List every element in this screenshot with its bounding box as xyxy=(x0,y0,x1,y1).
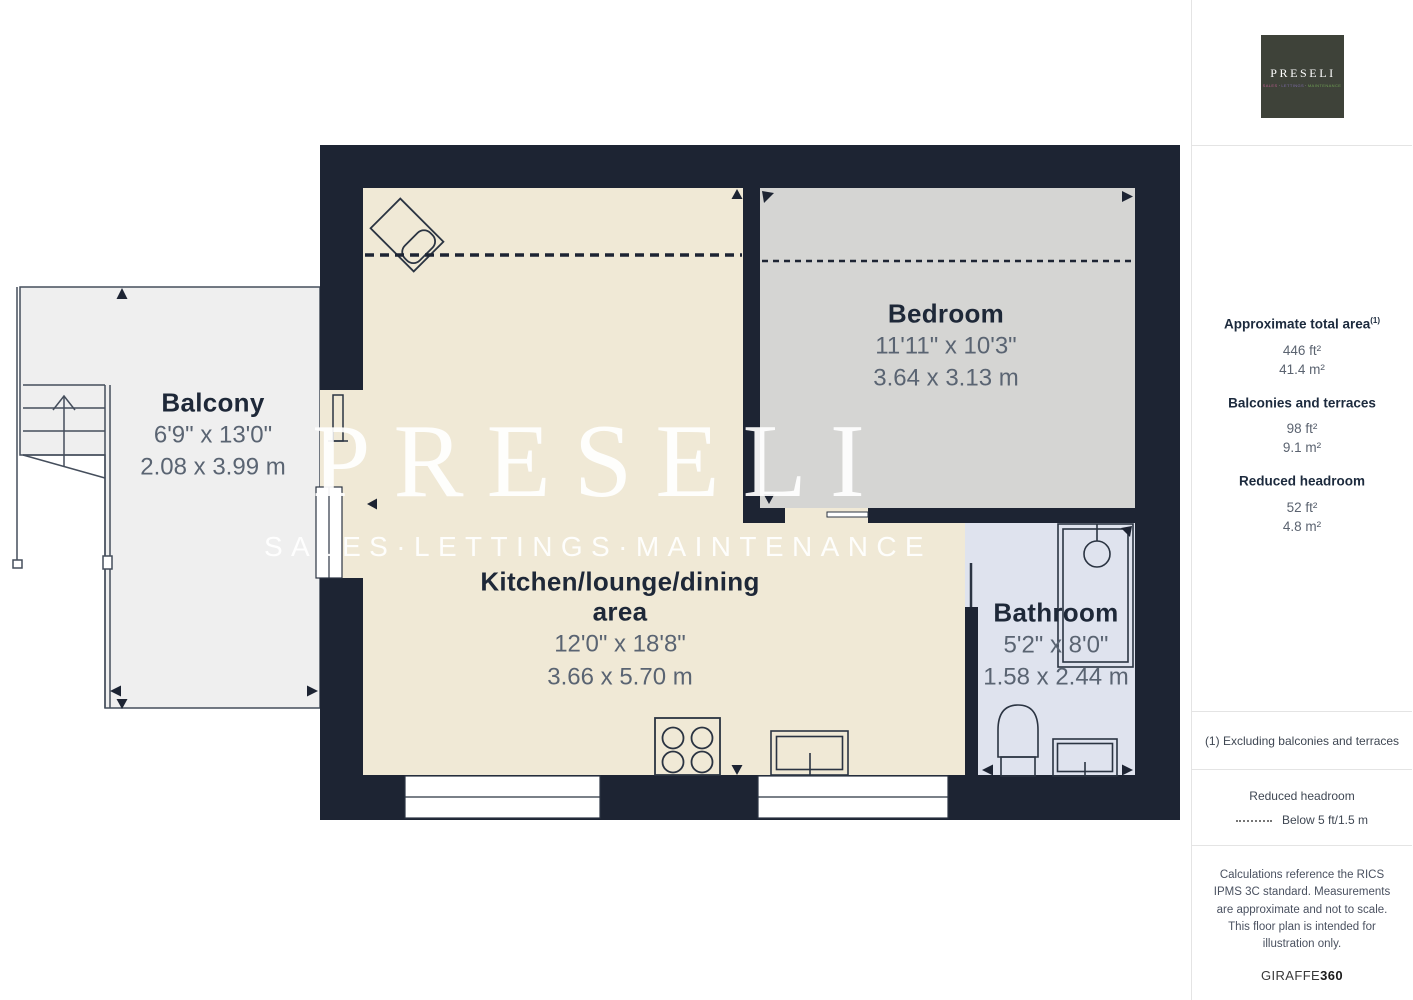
room-dim-m: 1.58 x 2.44 m xyxy=(983,664,1128,692)
agency-name: PRESELI xyxy=(1261,35,1344,81)
stat-value-ft: 52 ft² xyxy=(1192,498,1412,517)
dotted-line-swatch xyxy=(1236,820,1272,822)
room-name: Kitchen/lounge/dining area xyxy=(465,567,775,627)
bedroom-label: Bedroom 11'11" x 10'3" 3.64 x 3.13 m xyxy=(873,299,1018,394)
bottom-window-right xyxy=(758,776,948,818)
legend-section: Reduced headroom Below 5 ft/1.5 m xyxy=(1192,770,1412,846)
room-dim-m: 3.64 x 3.13 m xyxy=(873,365,1018,393)
stat-value-m: 41.4 m² xyxy=(1192,360,1412,379)
stat-value-ft: 446 ft² xyxy=(1192,341,1412,360)
room-dim-ft: 6'9" x 13'0" xyxy=(140,422,285,450)
wall-kitchen-bathroom xyxy=(965,607,978,775)
room-name: Bedroom xyxy=(873,299,1018,329)
legend-title: Reduced headroom xyxy=(1192,789,1412,803)
footnote: (1) Excluding balconies and terraces xyxy=(1192,712,1412,770)
credits-section: Calculations reference the RICS IPMS 3C … xyxy=(1192,846,1412,983)
credits-text: Calculations reference the RICS IPMS 3C … xyxy=(1213,867,1391,953)
room-dim-ft: 12'0" x 18'8" xyxy=(465,631,775,659)
bottom-window-left xyxy=(405,776,600,818)
bathroom-label: Bathroom 5'2" x 8'0" 1.58 x 2.44 m xyxy=(983,598,1128,693)
logo-section: PRESELI SALES·LETTINGS·MAINTENANCE xyxy=(1192,0,1412,146)
agency-tagline: SALES·LETTINGS·MAINTENANCE xyxy=(1261,83,1344,88)
tagline-sales: SALES xyxy=(1263,83,1278,88)
room-name: Balcony xyxy=(140,388,285,418)
watermark-tagline: SALES·LETTINGS·MAINTENANCE xyxy=(264,531,932,563)
tagline-lettings: LETTINGS xyxy=(1281,83,1304,88)
agency-logo: PRESELI SALES·LETTINGS·MAINTENANCE xyxy=(1261,35,1344,118)
room-dim-m: 3.66 x 5.70 m xyxy=(465,663,775,691)
balcony-floor xyxy=(20,287,320,708)
stat-label: Approximate total area(1) xyxy=(1192,316,1412,332)
stat-label: Reduced headroom xyxy=(1192,473,1412,489)
stat-value-m: 9.1 m² xyxy=(1192,438,1412,457)
watermark-brand: PRESELI xyxy=(312,400,888,521)
stat-reduced-headroom: Reduced headroom 52 ft² 4.8 m² xyxy=(1192,473,1412,536)
stat-total-area: Approximate total area(1) 446 ft² 41.4 m… xyxy=(1192,316,1412,379)
room-dim-ft: 11'11" x 10'3" xyxy=(873,333,1018,361)
room-name: Bathroom xyxy=(983,598,1128,628)
room-dim-m: 2.08 x 3.99 m xyxy=(140,454,285,482)
giraffe360-brand: GIRAFFE360 xyxy=(1192,968,1412,983)
stat-balconies: Balconies and terraces 98 ft² 9.1 m² xyxy=(1192,395,1412,458)
tagline-maintenance: MAINTENANCE xyxy=(1308,83,1342,88)
legend-label: Below 5 ft/1.5 m xyxy=(1282,813,1368,827)
balcony-label: Balcony 6'9" x 13'0" 2.08 x 3.99 m xyxy=(140,388,285,483)
stat-value-ft: 98 ft² xyxy=(1192,419,1412,438)
stat-label: Balconies and terraces xyxy=(1192,395,1412,411)
floor-plan: Balcony 6'9" x 13'0" 2.08 x 3.99 m Bedro… xyxy=(0,0,1191,1000)
kitchen-label: Kitchen/lounge/dining area 12'0" x 18'8"… xyxy=(465,567,775,692)
area-stats-section: Approximate total area(1) 446 ft² 41.4 m… xyxy=(1192,146,1412,712)
legend-row: Below 5 ft/1.5 m xyxy=(1192,813,1412,827)
info-sidebar: PRESELI SALES·LETTINGS·MAINTENANCE Appro… xyxy=(1191,0,1412,1000)
footnote-marker: (1) xyxy=(1370,316,1380,325)
room-dim-ft: 5'2" x 8'0" xyxy=(983,632,1128,660)
stat-value-m: 4.8 m² xyxy=(1192,517,1412,536)
